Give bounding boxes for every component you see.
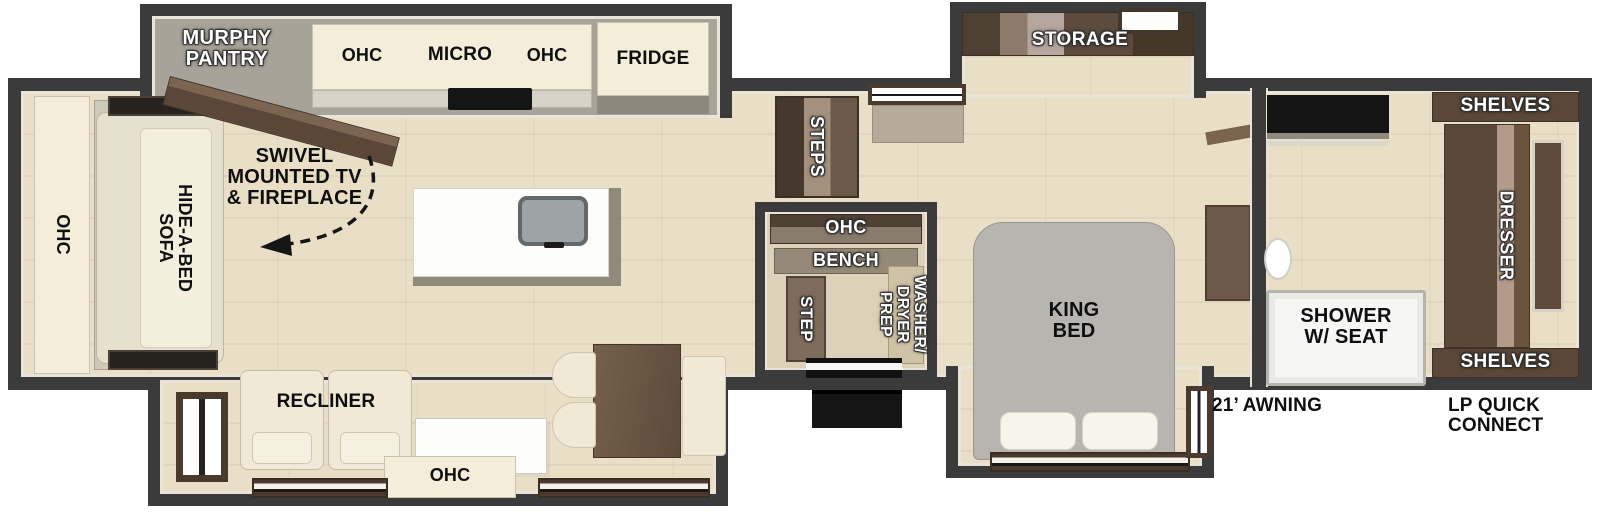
slide-end-window [176, 392, 228, 482]
murphy-pantry-label: MURPHYPANTRY [152, 28, 302, 70]
dinette-chair-top [552, 352, 596, 398]
front-tv-shelf [1267, 141, 1389, 146]
dresser-label: DRESSER [1478, 146, 1534, 326]
awning-label: 21’ AWNING [1212, 396, 1352, 416]
pillow-right [1082, 412, 1158, 450]
wardrobe-mirror [1532, 140, 1564, 312]
lp-quick-connect-label: LP QUICKCONNECT [1448, 396, 1578, 436]
galley-window [868, 84, 966, 105]
kitchen-ohc-right-label: OHC [508, 46, 586, 65]
cooktop [448, 88, 532, 110]
king-bed-label: KINGBED [1014, 300, 1134, 342]
micro-label: MICRO [408, 45, 512, 65]
shower-label: SHOWERW/ SEAT [1276, 306, 1416, 348]
entry-steps-outside [812, 390, 902, 428]
rear-ohc-label: OHC [34, 96, 90, 374]
dinette-table [593, 344, 681, 458]
front-tv-counter [1267, 95, 1389, 139]
shelves-bottom-label: SHELVES [1432, 352, 1579, 372]
floorplan-canvas: OHC MICRO OHC FRIDGE MURPHYPANTRY STORAG… [0, 0, 1600, 519]
entry-door [806, 358, 902, 378]
step-label: STEP [786, 276, 826, 362]
bedroom-wardrobe [1205, 205, 1251, 301]
storage-label: STORAGE [1000, 30, 1160, 50]
bed-slide-window [990, 452, 1190, 472]
toilet [1264, 238, 1292, 280]
kitchen-ohc-left-label: OHC [322, 46, 402, 65]
sofa-window-bottom [108, 350, 218, 370]
dinette-chair-bottom [552, 402, 596, 448]
stairs-label: STEPS [775, 96, 859, 198]
hide-a-bed-label: HIDE-A-BEDSOFA [128, 140, 222, 336]
entertainment-ohc-label: OHC [384, 466, 516, 485]
shelves-top-label: SHELVES [1432, 96, 1579, 116]
washer-dryer-label: WASHER/DRYERPREP [872, 258, 932, 370]
recliner-chair-left-seat [252, 432, 312, 464]
pillow-left [1000, 412, 1076, 450]
slide-window-right [538, 478, 710, 498]
fridge-shadow [597, 96, 709, 114]
galley-cabinet [872, 105, 964, 143]
kitchen-sink [518, 196, 588, 246]
swivel-arrow [248, 150, 383, 262]
fridge-label: FRIDGE [600, 49, 706, 69]
slide-window-left [252, 478, 388, 498]
sink-faucet [544, 242, 564, 248]
closet-ohc-label: OHC [770, 218, 922, 237]
bed-slide-side-window [1186, 386, 1212, 458]
front-divider-wall [1252, 88, 1266, 387]
recliner-label: RECLINER [238, 392, 414, 412]
dinette-bench [682, 356, 726, 456]
